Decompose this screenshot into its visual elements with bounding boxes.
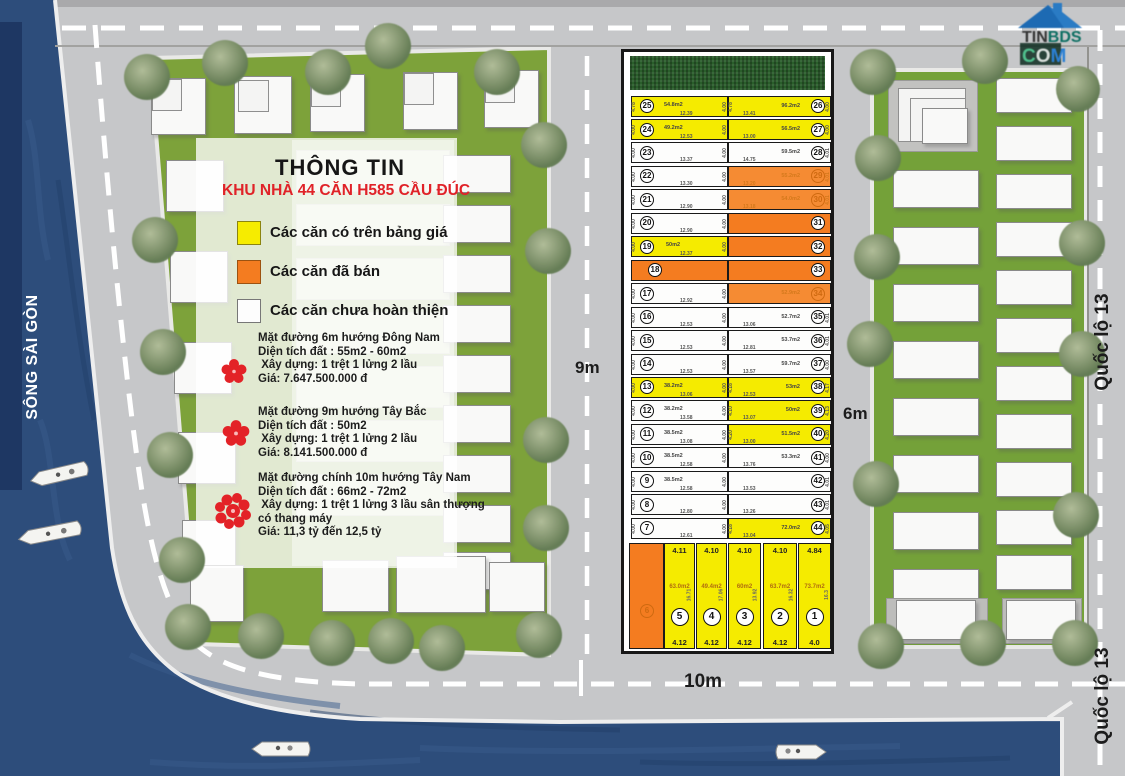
- svg-text:COM: COM: [1022, 46, 1066, 67]
- svg-text:TINBDS: TINBDS: [1022, 29, 1082, 46]
